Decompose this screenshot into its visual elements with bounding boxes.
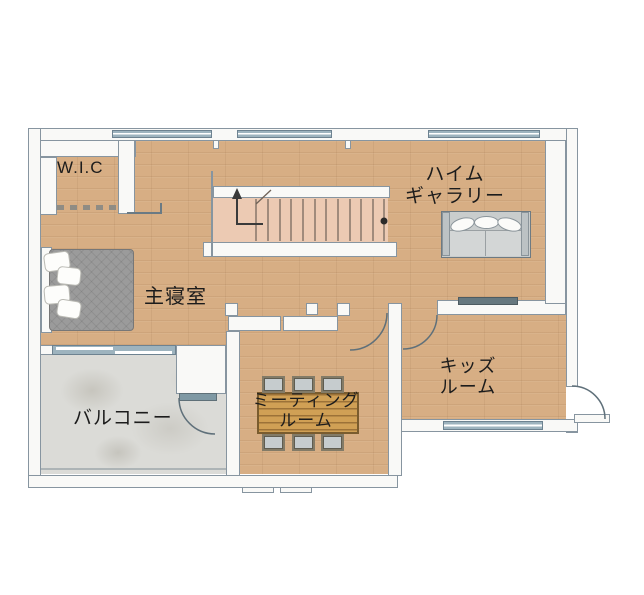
wall-stub-a (225, 303, 238, 316)
wall-stub-c (337, 303, 350, 316)
gallery-kids-window (458, 297, 518, 305)
sliding-panel-2 (283, 316, 338, 331)
sliding-panel-1 (228, 316, 281, 331)
exterior-wall-bottom (28, 475, 398, 488)
bed-pillow-4 (56, 298, 83, 320)
bottom-wall-notch-1 (242, 487, 274, 493)
kids-room-window (443, 421, 543, 430)
kids-label-line1: キッズ (423, 356, 513, 377)
wic-opening-dashes (57, 205, 118, 210)
sofa-armrest-right (521, 212, 529, 256)
wic-wall-right (118, 140, 135, 214)
stairs-floor (213, 197, 388, 243)
balcony-sliding-window (52, 345, 176, 355)
gallery-label: ハイム ギャラリー (400, 164, 510, 208)
sash-2 (115, 351, 172, 354)
window-top-3 (428, 130, 540, 138)
wall-stub-b (306, 303, 318, 315)
kids-room-label: キッズ ルーム (423, 356, 513, 397)
chair-4 (262, 434, 285, 451)
bottom-wall-notch-2 (280, 487, 312, 493)
entrance-door-leaf (574, 414, 610, 423)
wic-wall-left (40, 157, 57, 215)
sash-1 (56, 347, 113, 350)
chair-6 (321, 434, 344, 451)
sofa-seat-divider (485, 231, 486, 256)
balcony-edge-line (40, 468, 226, 470)
meeting-room-label: ミーティング ルーム (250, 391, 362, 430)
sofa-cushion-2 (474, 216, 499, 229)
closet-strip (545, 140, 566, 304)
meeting-label-line1: ミーティング (250, 391, 362, 411)
balcony-label: バルコニー (73, 408, 173, 430)
outside-cutout (398, 432, 566, 474)
wic-label: W.I.C (57, 158, 104, 178)
balcony-meeting-wall (226, 331, 240, 476)
stair-railing-top (213, 186, 390, 198)
sofa-armrest-left (442, 212, 450, 256)
stair-railing-bottom (203, 242, 397, 257)
window-top-1 (112, 130, 212, 138)
bed-pillow-2 (56, 266, 82, 286)
meeting-kids-wall (388, 303, 402, 476)
balcony-door-leaf (179, 393, 217, 401)
window-top-2 (237, 130, 332, 138)
kids-label-line2: ルーム (423, 377, 513, 398)
exterior-wall-right-upper (566, 128, 578, 387)
floor-plan: W.I.C ハイム ギャラリー 主寝室 ミーティング ルーム キッズ ルーム バ… (0, 0, 644, 595)
top-wall-stub-2 (345, 140, 351, 149)
chair-5 (292, 434, 315, 451)
master-bedroom-label: 主寝室 (144, 286, 207, 309)
top-wall-stub-1 (213, 140, 219, 149)
meeting-label-line2: ルーム (250, 411, 362, 431)
gallery-label-line2: ギャラリー (400, 186, 510, 208)
sofa (441, 211, 531, 258)
gallery-label-line1: ハイム (400, 164, 510, 186)
balcony-corner-block (176, 345, 226, 394)
